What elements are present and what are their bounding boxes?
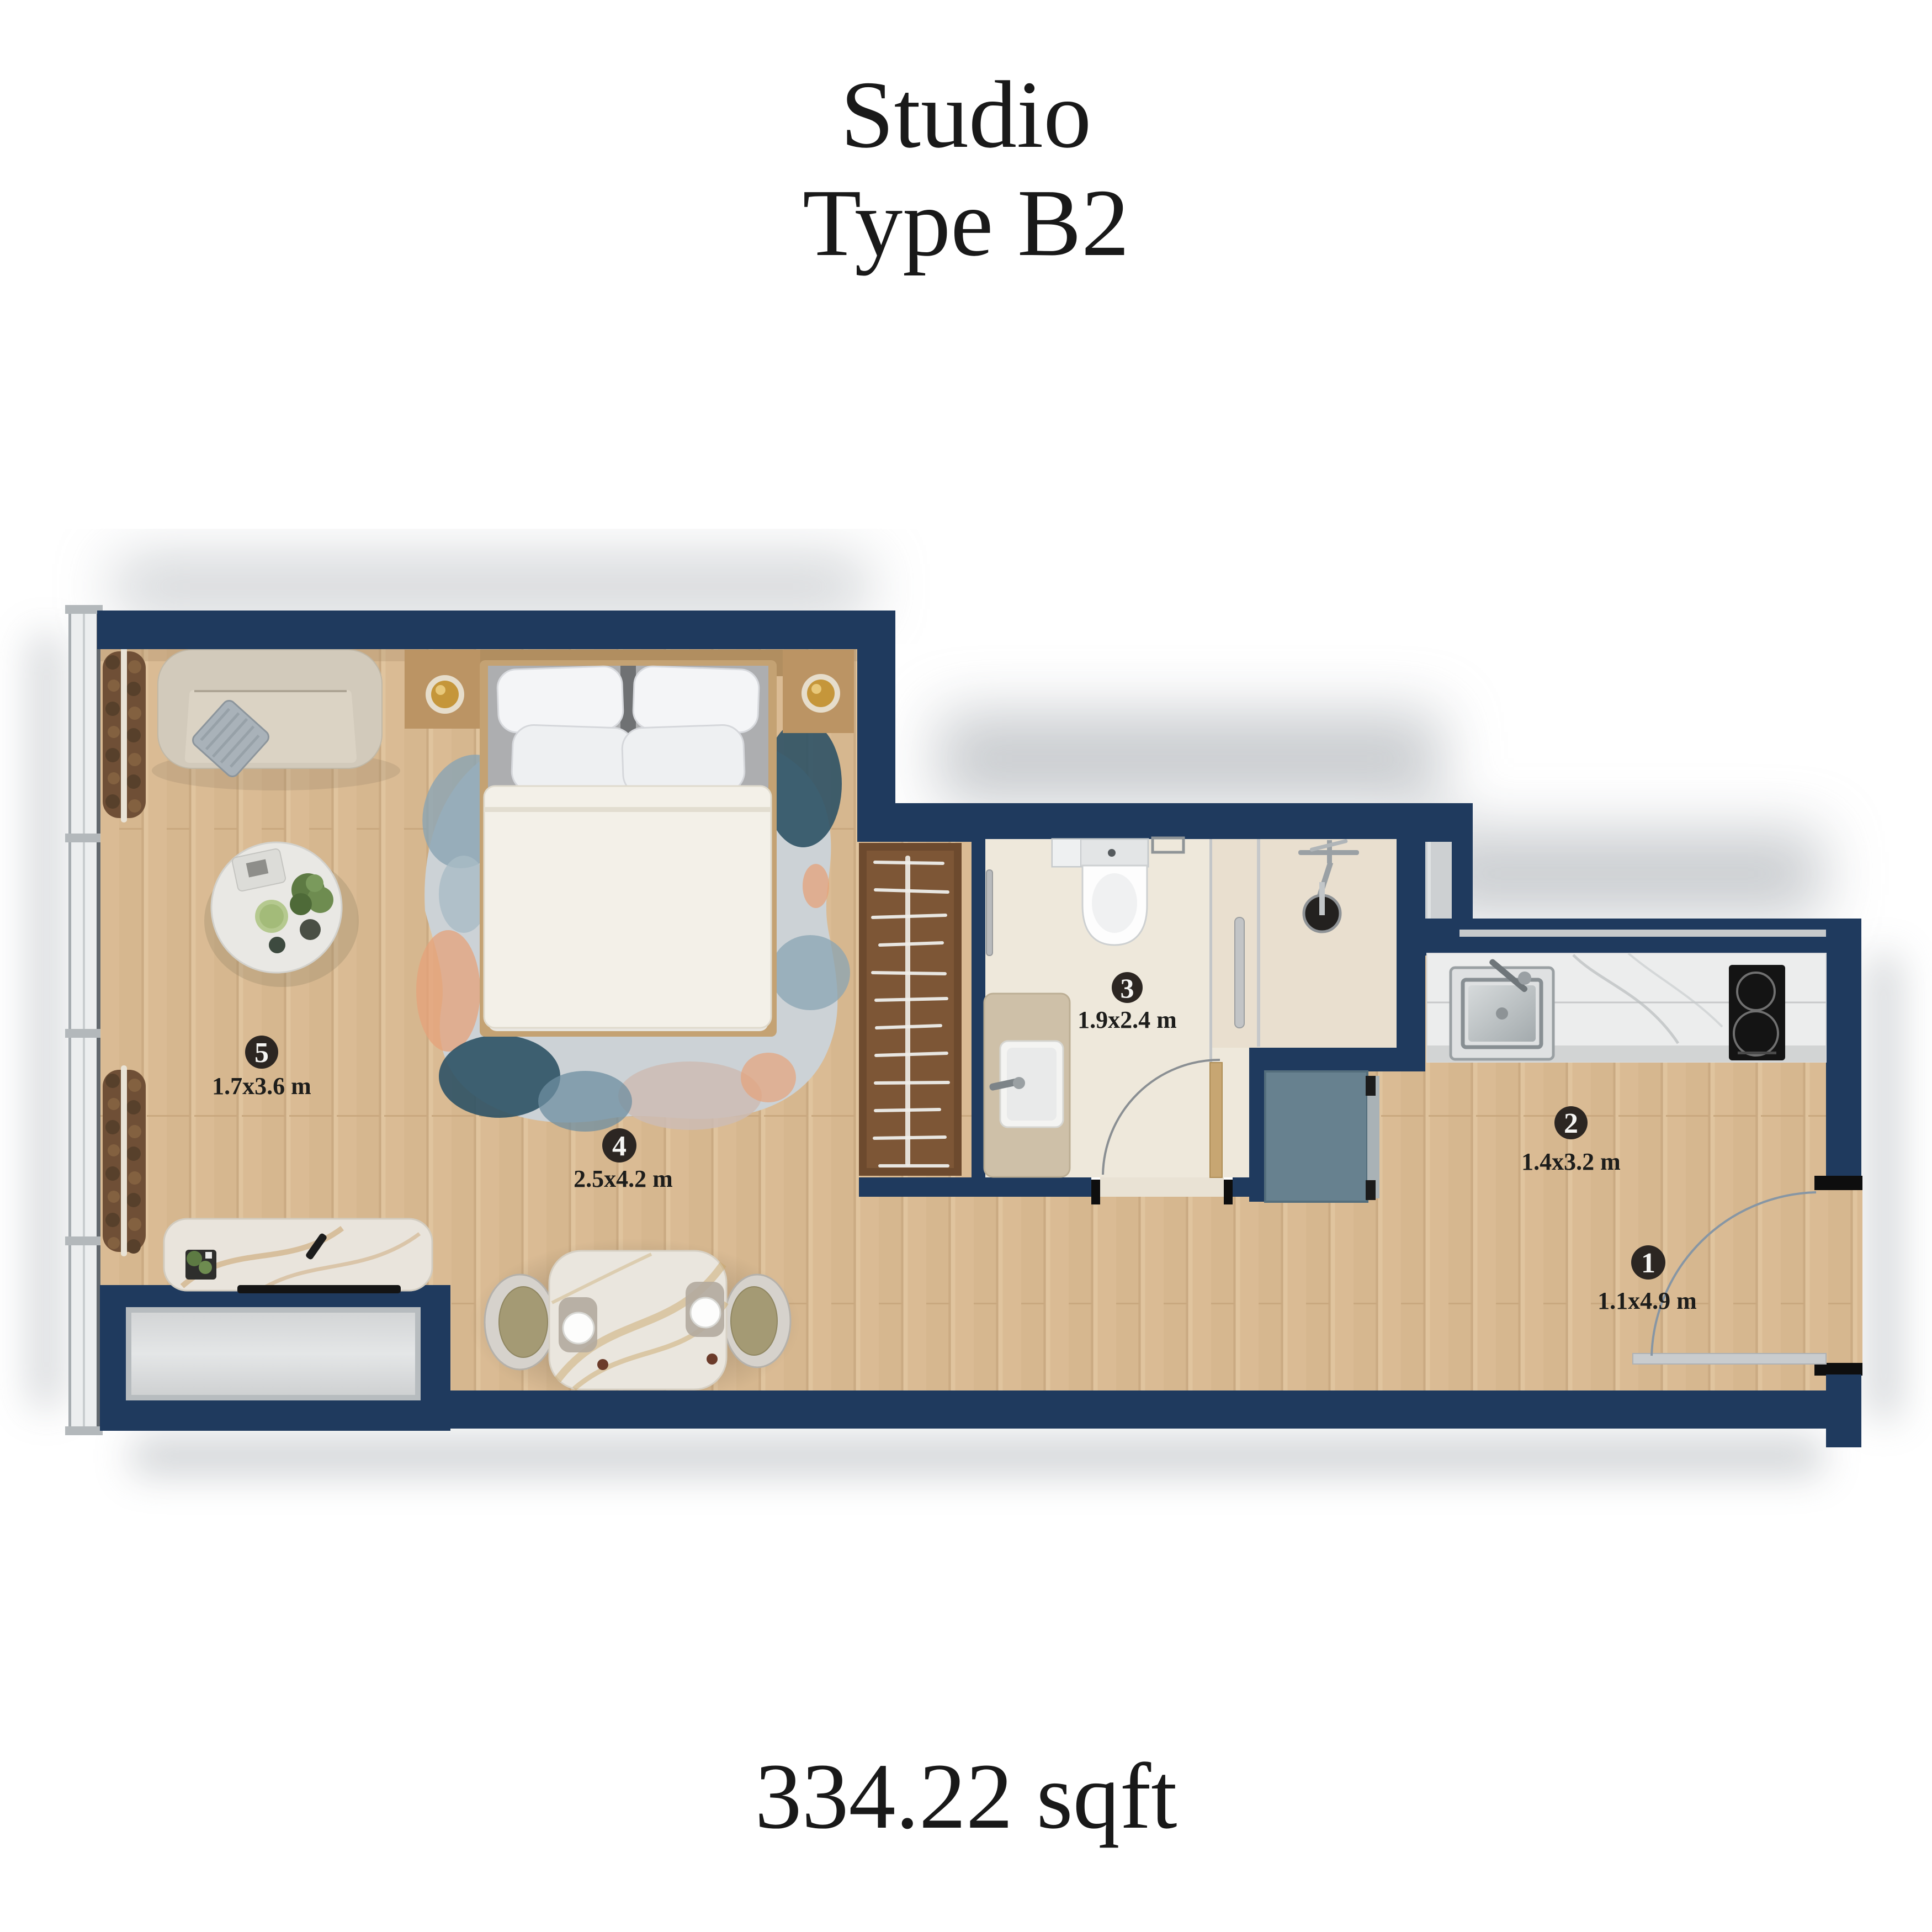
svg-text:1.4x3.2 m: 1.4x3.2 m <box>1521 1148 1621 1175</box>
svg-text:2.5x4.2 m: 2.5x4.2 m <box>574 1165 673 1192</box>
svg-text:5: 5 <box>254 1037 269 1069</box>
svg-text:Type B2: Type B2 <box>803 169 1129 276</box>
svg-text:Studio: Studio <box>841 61 1091 168</box>
svg-text:1.9x2.4 m: 1.9x2.4 m <box>1078 1006 1177 1033</box>
svg-text:2: 2 <box>1564 1108 1578 1139</box>
svg-text:1.7x3.6 m: 1.7x3.6 m <box>212 1073 311 1100</box>
svg-text:1: 1 <box>1641 1248 1655 1279</box>
svg-text:334.22 sqft: 334.22 sqft <box>755 1744 1177 1848</box>
svg-text:3: 3 <box>1121 973 1134 1004</box>
svg-text:4: 4 <box>612 1130 627 1162</box>
svg-text:1.1x4.9 m: 1.1x4.9 m <box>1597 1287 1697 1314</box>
